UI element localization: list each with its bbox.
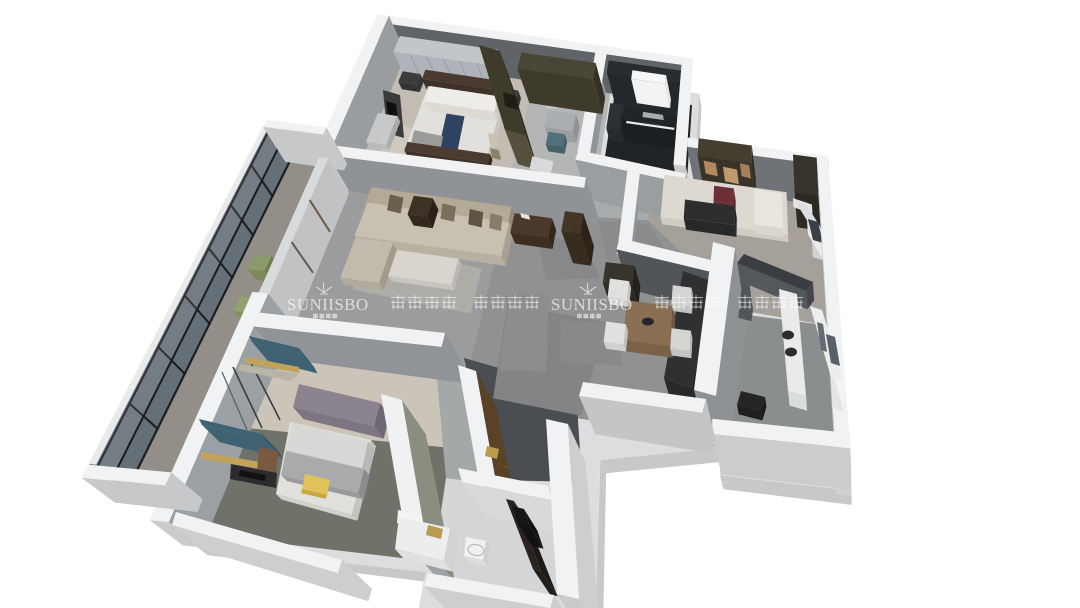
- svg-text:SUNIISBO: SUNIISBO: [287, 295, 369, 314]
- svg-text:SUNIISBO: SUNIISBO: [551, 295, 633, 314]
